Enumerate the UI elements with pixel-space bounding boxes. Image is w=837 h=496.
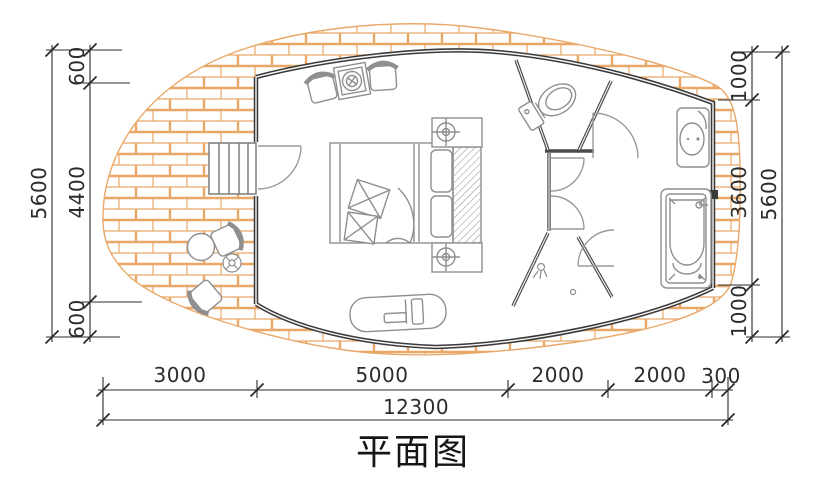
stove-table xyxy=(333,62,370,99)
dimensions-right: 1000 3600 1000 5600 xyxy=(718,46,790,344)
dim-bottom-seg-2: 5000 xyxy=(356,363,409,387)
dim-bottom-seg-3: 2000 xyxy=(532,363,585,387)
headboard xyxy=(453,147,481,243)
dim-right-seg-mid: 3600 xyxy=(727,166,751,219)
sink-vanity xyxy=(677,108,709,167)
plant-icon xyxy=(223,254,241,272)
dim-right-seg-bot: 1000 xyxy=(727,285,751,338)
dim-right-seg-top: 1000 xyxy=(727,50,751,103)
armchair xyxy=(367,62,399,91)
bathtub xyxy=(661,189,711,288)
drawing-title: 平面图 xyxy=(356,432,470,473)
cushion xyxy=(344,212,378,244)
staircase xyxy=(209,143,256,194)
floor-plan-page: 600 4400 600 5600 1000 3600 1000 5600 xyxy=(0,0,837,496)
dim-right-total: 5600 xyxy=(757,168,781,221)
dim-bottom-total: 12300 xyxy=(383,395,449,419)
daybed-bench xyxy=(349,294,447,333)
pillow xyxy=(431,150,452,192)
dim-bottom-seg-4: 2000 xyxy=(634,363,687,387)
dim-bottom-seg-1: 3000 xyxy=(154,363,207,387)
dim-bottom-seg-5: 300 xyxy=(701,364,741,388)
dim-left-seg-mid: 4400 xyxy=(65,166,89,219)
dim-left-total: 5600 xyxy=(27,167,51,220)
floor-plan-drawing: 600 4400 600 5600 1000 3600 1000 5600 xyxy=(0,0,837,496)
outdoor-round-table xyxy=(188,234,215,261)
dim-left-seg-top: 600 xyxy=(65,46,89,86)
pillow xyxy=(431,196,452,237)
dimensions-bottom: 3000 5000 2000 2000 300 12300 xyxy=(97,363,741,427)
dim-left-seg-bot: 600 xyxy=(65,299,89,339)
